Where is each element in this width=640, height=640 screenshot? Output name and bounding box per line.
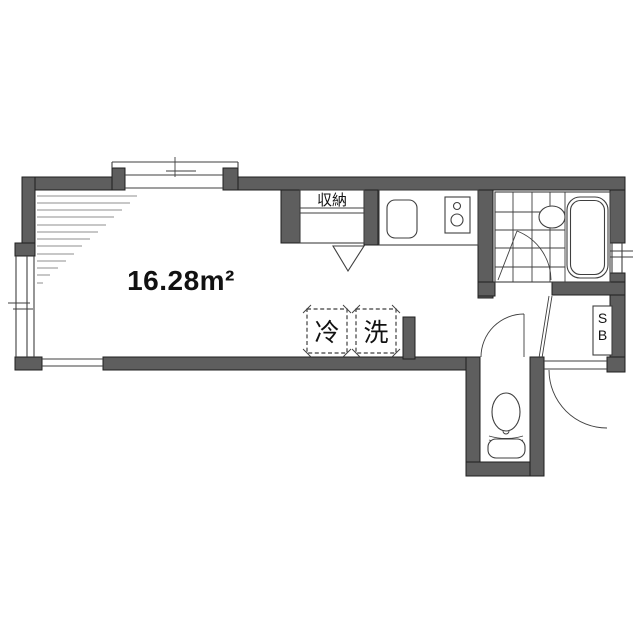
wall-bay-left-post: [112, 168, 125, 190]
wall-toilet-left: [466, 357, 480, 476]
wash-basin: [539, 206, 565, 228]
wall-top-main: [238, 177, 625, 190]
entrance: S B: [539, 296, 612, 428]
genkan-step-line: [539, 296, 552, 358]
wall-bath-bottom: [552, 282, 625, 295]
floor-plan-page: 収納: [0, 0, 640, 640]
wall-right-upper: [610, 190, 625, 243]
room-area-label: 16.28m²: [127, 265, 235, 296]
shoebox-label-top: S: [598, 310, 607, 326]
toilet-door: [481, 314, 524, 357]
toilet-bowl: [492, 393, 520, 431]
appliances: 冷 洗: [303, 305, 400, 357]
wall-left-step: [15, 243, 35, 256]
kitchen: [379, 190, 478, 245]
wall-bottom-left-corner: [15, 357, 42, 370]
wall-closet-left: [281, 190, 300, 243]
wall-bay-right-post: [223, 168, 238, 190]
shoebox-label-bottom: B: [598, 327, 607, 343]
entrance-threshold: [544, 361, 607, 369]
bathtub: [567, 197, 608, 278]
wall-entrance-hinge-block: [607, 357, 625, 372]
entrance-door-arc: [549, 370, 607, 428]
window-left: [8, 256, 34, 357]
bathroom: [495, 192, 610, 282]
wall-stub-appliance: [403, 317, 415, 359]
closet: 収納: [300, 190, 364, 271]
wall-toilet-right: [530, 357, 544, 476]
closet-label: 収納: [317, 192, 347, 209]
wall-closet-right: [364, 190, 378, 245]
ceiling-hatch: [37, 196, 137, 283]
wall-bath-door-post: [478, 282, 495, 296]
toilet-room: [481, 314, 525, 458]
floor-plan: 収納: [0, 0, 640, 640]
window-bottom-left: [42, 359, 103, 366]
fridge-label: 冷: [314, 319, 339, 347]
closet-door-triangle: [333, 246, 364, 271]
wall-left-upper: [22, 177, 35, 243]
bay-window-top: [112, 157, 238, 188]
washer-label: 洗: [363, 319, 388, 347]
toilet-tank: [488, 439, 525, 458]
kitchen-sink: [387, 200, 417, 238]
